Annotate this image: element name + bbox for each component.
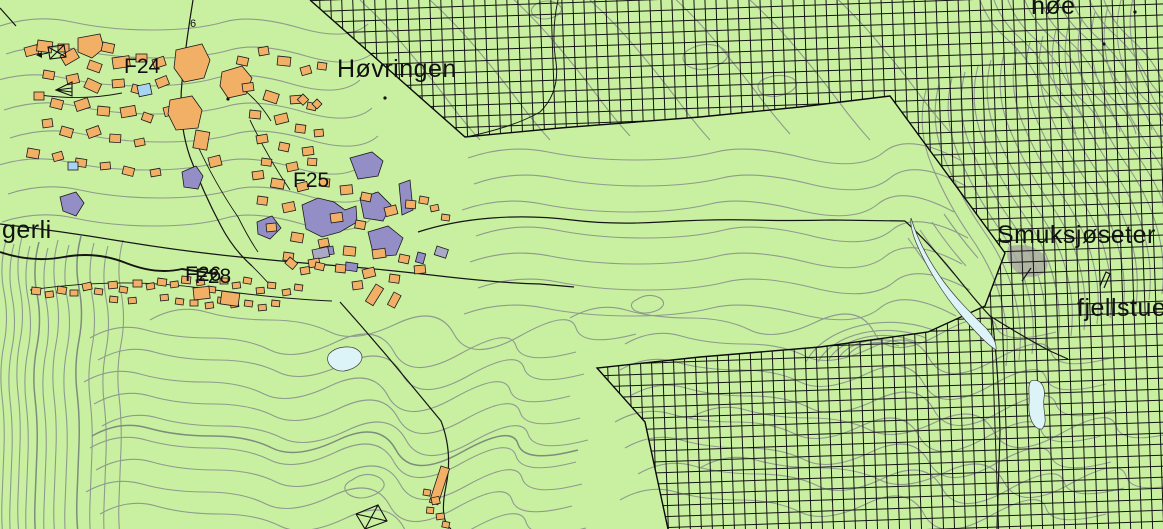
label-zone-f24: F24 bbox=[124, 55, 161, 78]
label-small-mark: 6 bbox=[190, 18, 196, 30]
label-hoe-partial: høe bbox=[1031, 0, 1076, 20]
label-fjellstue: fjellstue bbox=[1077, 294, 1163, 322]
label-zone-f28-overlap: F28 bbox=[195, 265, 231, 288]
map-viewport[interactable]: Høvringen høe Smuksjøseter fjellstue ger… bbox=[0, 0, 1163, 529]
point-mark bbox=[1133, 10, 1136, 13]
label-zone-f25: F25 bbox=[293, 169, 329, 192]
point-mark bbox=[1102, 42, 1105, 45]
label-hovringen: Høvringen bbox=[337, 55, 457, 83]
label-smuksjoseter: Smuksjøseter bbox=[997, 221, 1156, 249]
label-gerli-partial: gerli bbox=[2, 216, 52, 244]
map-canvas[interactable]: Høvringen høe Smuksjøseter fjellstue ger… bbox=[0, 0, 1163, 529]
point-mark bbox=[226, 97, 229, 100]
point-mark bbox=[383, 96, 386, 99]
